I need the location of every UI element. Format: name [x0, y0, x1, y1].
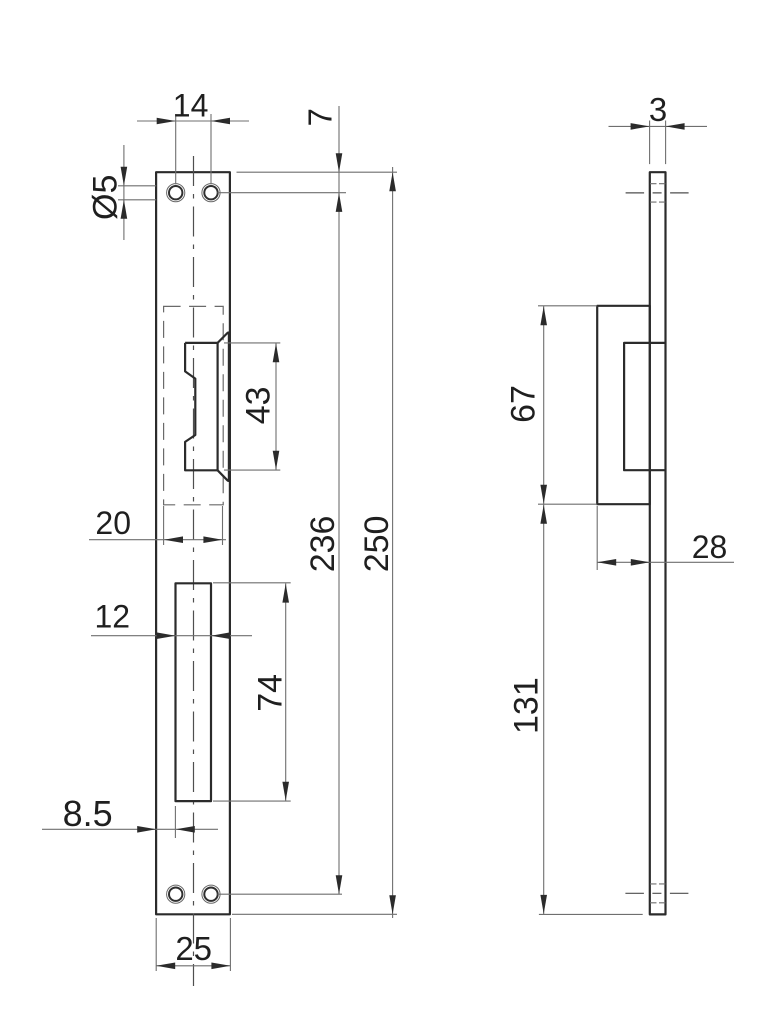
svg-text:12: 12 — [95, 599, 131, 635]
svg-text:74: 74 — [252, 674, 290, 712]
svg-text:43: 43 — [240, 386, 278, 424]
svg-text:3: 3 — [649, 91, 667, 128]
svg-text:20: 20 — [95, 505, 131, 541]
svg-text:Ø5: Ø5 — [87, 175, 125, 220]
svg-text:250: 250 — [358, 516, 396, 573]
svg-text:25: 25 — [175, 930, 212, 967]
svg-text:28: 28 — [692, 529, 728, 565]
svg-text:131: 131 — [508, 677, 546, 734]
svg-text:236: 236 — [304, 516, 342, 573]
svg-text:7: 7 — [302, 108, 339, 126]
svg-text:8.5: 8.5 — [63, 793, 113, 834]
svg-text:67: 67 — [505, 385, 543, 423]
svg-text:14: 14 — [173, 88, 209, 124]
